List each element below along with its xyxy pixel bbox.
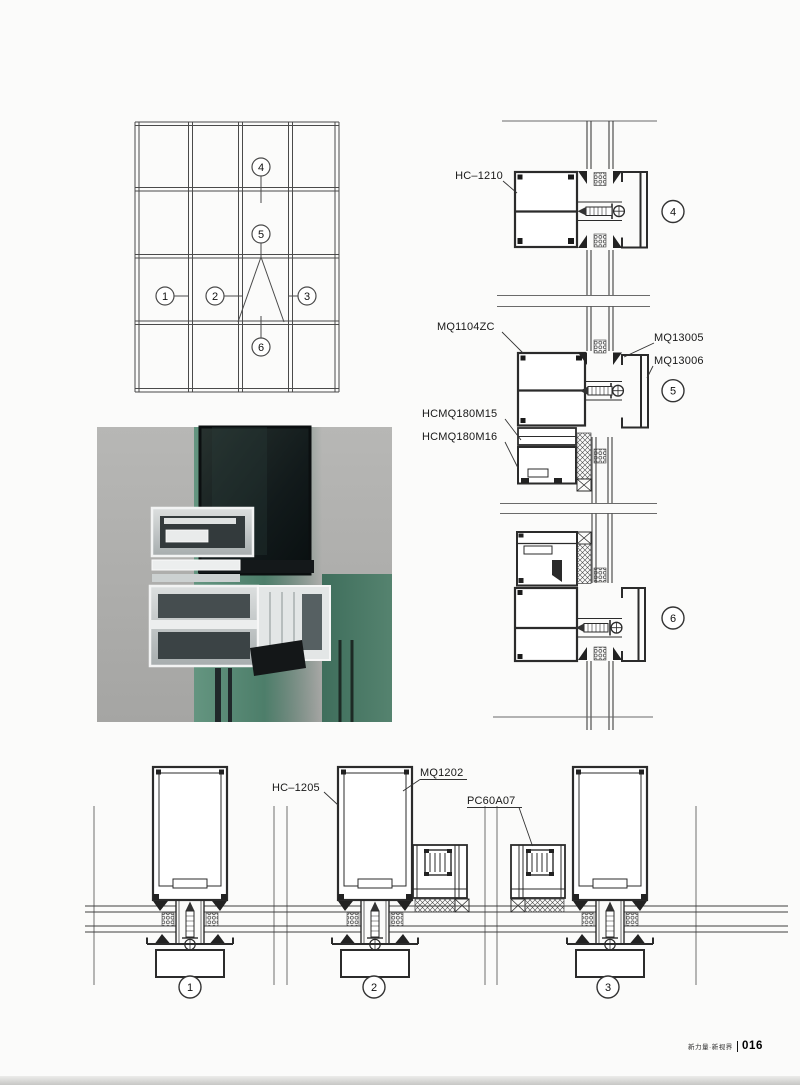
- catalog-page: 1 2 3 4 5 6: [0, 0, 800, 1085]
- cover-cap-box: [341, 950, 409, 977]
- footer-page-number: 016: [742, 1040, 763, 1052]
- elevation-callout-5: 5: [252, 225, 270, 243]
- break-lines: [497, 296, 650, 307]
- elevation-grid-verticals: [135, 122, 339, 392]
- igu-spacer: [391, 913, 403, 926]
- igu-spacer: [594, 449, 606, 463]
- mullion-box-profile: [515, 588, 577, 661]
- insulation-strip: [525, 899, 564, 912]
- plan-detail-2: 2: [332, 767, 418, 998]
- mullion-box-profile: [515, 172, 577, 247]
- detail-callout-2-number: 2: [371, 982, 377, 994]
- detail-callout-1: 1: [179, 976, 201, 998]
- label-hc1205: HC–1205: [272, 782, 320, 794]
- fastening-screw: [576, 620, 622, 636]
- fastening-screw: [580, 383, 623, 399]
- detail-callout-5-number: 5: [670, 386, 676, 398]
- page-edge: [0, 1076, 800, 1085]
- igu-spacer: [582, 913, 594, 926]
- leader-hc1205: [324, 792, 338, 805]
- igu-spacer: [594, 173, 606, 186]
- sash-section-a: [413, 845, 469, 912]
- section-detail-5: 5 MQ1104ZC MQ13005 MQ13006 HCMQ180M15 HC…: [422, 296, 704, 504]
- section-detail-6: 6: [493, 504, 684, 731]
- elevation-grid-horizontals: [135, 122, 339, 392]
- footer-divider: [737, 1041, 738, 1052]
- elevation-diagram: 1 2 3 4 5 6: [135, 122, 339, 392]
- plan-detail-3: 3: [567, 767, 653, 998]
- leader-hcmq180m16: [505, 442, 518, 468]
- sash-frame-profile: [517, 532, 577, 586]
- elevation-callout-4: 4: [252, 158, 270, 176]
- label-mq13005: MQ13005: [654, 332, 704, 344]
- igu-spacer: [594, 647, 606, 660]
- label-mq1104zc: MQ1104ZC: [437, 321, 495, 333]
- detail-callout-1-number: 1: [187, 982, 193, 994]
- leader-pc60a07: [519, 808, 533, 847]
- pressure-cap-profile: [622, 172, 647, 248]
- blocking-box: [577, 532, 591, 544]
- igu-spacer: [626, 913, 638, 926]
- elevation-callout-1-number: 1: [162, 291, 168, 303]
- elevation-callout-6-number: 6: [258, 342, 264, 354]
- elevation-callout-2: 2: [206, 287, 224, 305]
- render-green-cap-block: [322, 574, 392, 722]
- igu-spacer: [347, 913, 359, 926]
- elevation-callout-5-number: 5: [258, 229, 264, 241]
- fastening-screw: [578, 204, 625, 220]
- sash-section-b: [511, 845, 565, 912]
- window-glass: [592, 437, 612, 503]
- blocking-box: [577, 479, 591, 491]
- elevation-callout-3: 3: [298, 287, 316, 305]
- detail-callout-4-number: 4: [670, 207, 676, 219]
- insulation-strip: [415, 899, 455, 912]
- detail-callout-3-number: 3: [605, 982, 611, 994]
- detail-callout-6-number: 6: [670, 613, 676, 625]
- product-render: [97, 427, 392, 722]
- label-mq1202: MQ1202: [420, 767, 463, 779]
- igu-spacer: [594, 340, 606, 353]
- cover-cap-box: [156, 950, 224, 977]
- glass-unit: [587, 661, 613, 730]
- break-lines: [500, 504, 657, 514]
- insulation-strip: [577, 433, 591, 479]
- detail-callout-6: 6: [662, 607, 684, 629]
- elevation-callout-4-number: 4: [258, 162, 264, 174]
- elevation-callout-3-number: 3: [304, 291, 310, 303]
- mullion-box-profile: [518, 353, 585, 426]
- igu-spacer: [162, 913, 174, 926]
- label-mq13006: MQ13006: [654, 355, 704, 367]
- detail-callout-2: 2: [363, 976, 385, 998]
- plan-detail-1: 1: [147, 767, 233, 998]
- insulation-strip: [577, 544, 591, 584]
- plan-sections: 1: [85, 767, 788, 998]
- pressure-cap-profile: [622, 588, 645, 661]
- leader-mq1104zc: [502, 332, 523, 353]
- igu-spacer: [206, 913, 218, 926]
- footer-brand: 新力量·新视界: [688, 1041, 733, 1051]
- detail-callout-3: 3: [597, 976, 619, 998]
- label-hc1210: HC–1210: [455, 170, 503, 182]
- label-pc60a07: PC60A07: [467, 795, 516, 807]
- label-hcmq180m16: HCMQ180M16: [422, 431, 497, 443]
- elevation-callout-6: 6: [252, 338, 270, 356]
- fastening-screw: [602, 902, 618, 950]
- elevation-callout-1: 1: [156, 287, 174, 305]
- label-hcmq180m15: HCMQ180M15: [422, 408, 497, 420]
- cover-cap-box: [576, 950, 644, 977]
- detail-callout-5: 5: [662, 380, 684, 402]
- section-detail-4: 4 HC–1210: [455, 121, 684, 295]
- fastening-screw: [182, 902, 198, 950]
- footer: 新力量·新视界 016: [688, 1040, 763, 1052]
- igu-spacer: [594, 234, 606, 247]
- drawing-canvas: 1 2 3 4 5 6: [0, 0, 800, 1085]
- pressure-cap-profile: [622, 355, 648, 428]
- detail-callout-4: 4: [662, 201, 684, 223]
- fastening-screw: [367, 902, 383, 950]
- vent-window-symbol: [238, 257, 284, 322]
- elevation-callout-2-number: 2: [212, 291, 218, 303]
- igu-spacer: [594, 568, 606, 582]
